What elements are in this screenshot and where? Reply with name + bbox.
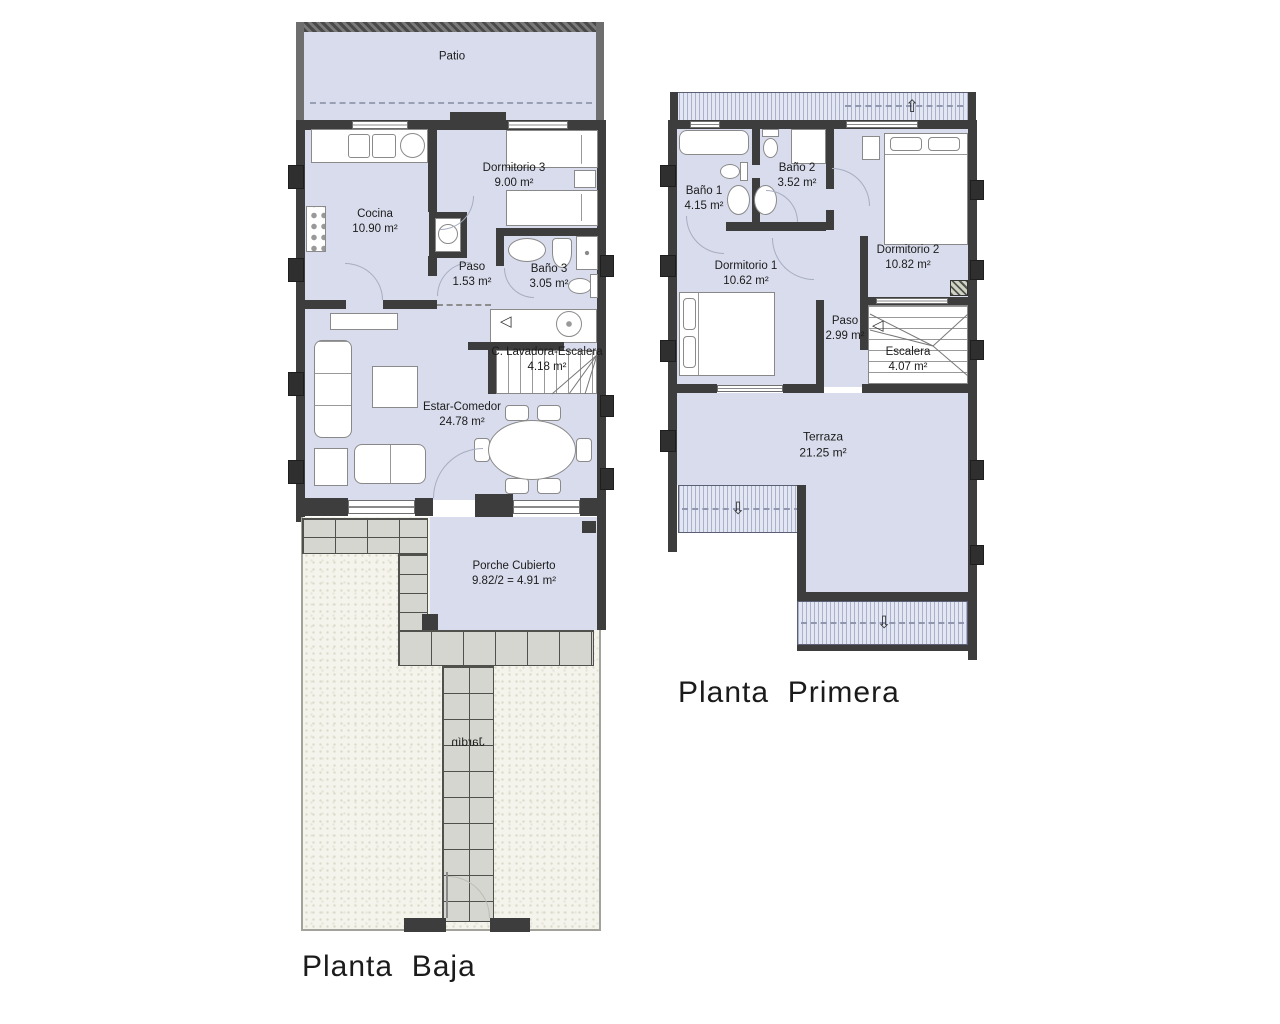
nightstand-icon (862, 136, 880, 160)
gate-post (404, 918, 446, 932)
cooking-pot-icon (400, 133, 425, 158)
dining-table-icon (488, 420, 576, 480)
label-patio: Patio (439, 50, 465, 65)
label-bano1: Baño 1 4.15 m² (685, 184, 724, 214)
window (717, 385, 783, 392)
wall-pier (450, 112, 506, 129)
wall-pier (660, 165, 676, 187)
wall (670, 92, 678, 122)
wall (968, 92, 976, 122)
kitchen-sink-icon (372, 134, 396, 158)
label-jardin: Jardín (451, 735, 484, 751)
wall (597, 517, 606, 630)
wall-pier (970, 460, 984, 480)
roof-overhang (670, 92, 976, 122)
room-area: 3.05 m² (530, 277, 569, 292)
chair-icon (537, 405, 561, 421)
label-cocina: Cocina 10.90 m² (352, 207, 397, 237)
room-name: Baño 1 (685, 184, 724, 199)
wall-pier (288, 372, 304, 396)
wall (668, 384, 717, 393)
room-area: 9.82/2 = 4.91 m² (472, 574, 556, 589)
wall-pier (600, 255, 614, 277)
wall-pier (288, 258, 304, 282)
shaft-hatch (950, 280, 968, 296)
wall (797, 592, 968, 601)
wall-pier (970, 260, 984, 280)
room-name: Paso (453, 260, 492, 275)
window (876, 298, 948, 304)
wall-pier (970, 340, 984, 360)
window (513, 500, 580, 514)
patio-wall-top (296, 22, 604, 32)
roof-arrow-down-icon: ⇩ (731, 500, 745, 517)
floorplan-canvas: Patio Cocina 10.90 m² Dormitorio 3 (0, 0, 1280, 1024)
chair-icon (505, 405, 529, 421)
patio-dashed-line (310, 102, 592, 104)
room-area: 4.15 m² (685, 199, 724, 214)
pillow-icon (683, 336, 696, 368)
wall-pier (600, 468, 614, 490)
roof-arrow-down-icon: ⇩ (877, 614, 891, 631)
toilet-icon (763, 138, 778, 158)
room-area: 2.99 m² (826, 329, 865, 344)
wall (797, 485, 806, 592)
toilet-icon (568, 278, 592, 294)
bathtub-icon (679, 130, 749, 155)
side-table-icon (314, 448, 348, 486)
wall (296, 300, 346, 309)
room-name: Porche Cubierto (472, 559, 556, 574)
roof-arrow-up-icon: ⇧ (905, 98, 919, 115)
label-estar-comedor: Estar-Comedor 24.78 m² (423, 400, 501, 430)
label-lavadora-escalera: C. Lavadora-Escalera 4.18 m² (491, 345, 602, 375)
room-name: Estar-Comedor (423, 400, 501, 415)
room-area: 4.07 m² (886, 360, 931, 375)
wall (383, 300, 437, 309)
coffee-table-icon (372, 366, 418, 408)
sofa-icon (314, 340, 352, 438)
wall-pier (600, 395, 614, 417)
room-area: 9.00 m² (483, 176, 546, 191)
window (348, 500, 415, 514)
room-area: 10.82 m² (877, 258, 940, 273)
chair-icon (576, 438, 592, 462)
opening-dashed (437, 304, 491, 306)
room-area: 1.53 m² (453, 275, 492, 290)
patio-wall-right (596, 22, 604, 128)
label-dormitorio1: Dormitorio 1 10.62 m² (715, 259, 778, 289)
tile-path (302, 518, 428, 554)
toilet-tank-icon (740, 162, 748, 181)
chair-icon (537, 478, 561, 494)
room-area: 10.90 m² (352, 222, 397, 237)
room-name: Patio (439, 50, 465, 65)
ground-floor-title: Planta Baja (302, 950, 476, 984)
label-dormitorio3: Dormitorio 3 9.00 m² (483, 161, 546, 191)
wall-pier (582, 521, 596, 533)
wall (726, 222, 826, 231)
wall (428, 128, 437, 212)
pillow-icon (890, 137, 922, 151)
stair-direction-icon: ◁ (500, 314, 512, 329)
label-bano2: Baño 2 3.52 m² (778, 161, 817, 191)
room-area: 24.78 m² (423, 415, 501, 430)
sofa-icon (354, 444, 426, 484)
wall-pier (415, 498, 433, 516)
stair-direction-icon: ◁ (872, 318, 884, 333)
room-area: 3.52 m² (778, 176, 817, 191)
window (352, 121, 408, 129)
nightstand-icon (574, 170, 596, 188)
roof-dashed-line (845, 105, 963, 107)
room-area: 21.25 m² (799, 445, 846, 461)
label-paso-ground: Paso 1.53 m² (453, 260, 492, 290)
wall (783, 384, 824, 393)
room-name: Baño 2 (778, 161, 817, 176)
gate-post (490, 918, 530, 932)
room-area: 10.62 m² (715, 274, 778, 289)
bed-icon (506, 190, 598, 226)
label-escalera: Escalera 4.07 m² (886, 345, 931, 375)
room-name: Terraza (799, 429, 846, 445)
wall-pier (288, 165, 304, 189)
room-area: 4.18 m² (491, 360, 602, 375)
shower-icon (791, 129, 826, 164)
porch-post (422, 614, 438, 630)
wall (428, 256, 437, 276)
pillow-icon (928, 137, 960, 151)
wall (826, 210, 834, 230)
wall-pier (660, 340, 676, 362)
wall-pier (970, 180, 984, 200)
sink-icon (508, 238, 546, 262)
wall-pier (660, 255, 676, 277)
room-terraza-lower (805, 485, 968, 592)
tile-path (398, 630, 594, 666)
toilet-icon (720, 164, 740, 179)
toilet-tank-icon (762, 129, 779, 137)
room-name: Paso (826, 314, 865, 329)
kitchen-sink-icon (348, 134, 370, 158)
pillow-icon (683, 298, 696, 330)
room-name: C. Lavadora-Escalera (491, 345, 602, 360)
wall (752, 129, 760, 165)
room-name: Baño 3 (530, 262, 569, 277)
wall (496, 236, 504, 266)
wall (816, 300, 824, 384)
label-porche: Porche Cubierto 9.82/2 = 4.91 m² (472, 559, 556, 589)
water-heater-icon (556, 311, 582, 337)
toilet-tank-icon (590, 274, 598, 298)
label-dormitorio2: Dormitorio 2 10.82 m² (877, 243, 940, 273)
wall (496, 228, 598, 236)
patio-wall-left (296, 22, 304, 128)
window (690, 121, 720, 128)
first-floor-title: Planta Primera (678, 676, 900, 710)
label-bano3: Baño 3 3.05 m² (530, 262, 569, 292)
wall-pier (970, 545, 984, 565)
wall (862, 384, 976, 393)
wall (797, 645, 968, 651)
chair-icon (505, 478, 529, 494)
window (508, 121, 568, 129)
label-paso-first: Paso 2.99 m² (826, 314, 865, 344)
room-name: Dormitorio 3 (483, 161, 546, 176)
wall-pier (288, 460, 304, 484)
stove-icon (306, 206, 326, 252)
label-terraza: Terraza 21.25 m² (799, 429, 846, 460)
wall (597, 120, 606, 522)
sideboard-icon (330, 313, 398, 330)
room-name: Escalera (886, 345, 931, 360)
room-name: Dormitorio 2 (877, 243, 940, 258)
wall (296, 498, 348, 516)
room-patio (302, 30, 598, 122)
window (846, 121, 918, 128)
shower-icon (576, 236, 598, 270)
sink-icon (727, 185, 750, 215)
wall-pier (660, 430, 676, 452)
room-name: Dormitorio 1 (715, 259, 778, 274)
wall (580, 498, 606, 516)
room-name: Jardín (451, 735, 484, 751)
room-name: Cocina (352, 207, 397, 222)
